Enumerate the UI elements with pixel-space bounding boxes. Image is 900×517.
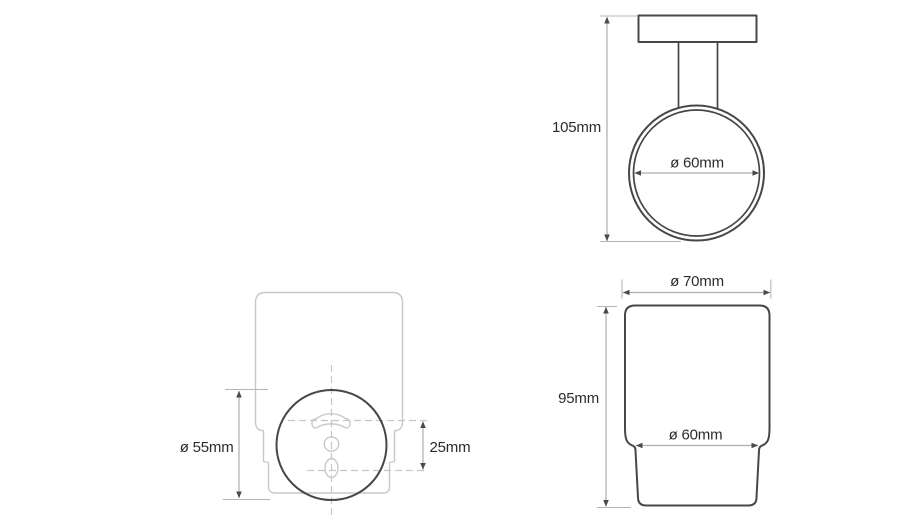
hole-spacing-label: 25mm [430, 439, 471, 456]
tumbler-ghost-outline [256, 293, 403, 494]
plate-diameter-label: ø 55mm [180, 439, 234, 456]
bottom-diameter-label: ø 60mm [669, 427, 723, 444]
tumbler-outline [625, 306, 770, 506]
technical-drawing: 105mm ø 60mm ø 70mm 95mm ø 60mm ø 55m [0, 0, 900, 517]
tumbler-height-label: 95mm [558, 390, 599, 407]
wall-plate [639, 16, 757, 43]
holder-back-view: ø 55mm 25mm [180, 293, 471, 517]
mounting-stem [679, 42, 718, 109]
height-dimension-label: 105mm [552, 119, 601, 136]
holder-front-view: 105mm ø 60mm [552, 16, 764, 242]
ring-diameter-label: ø 60mm [670, 155, 724, 172]
technical-drawing-canvas: 105mm ø 60mm ø 70mm 95mm ø 60mm ø 55m [0, 0, 900, 517]
top-diameter-label: ø 70mm [670, 273, 724, 290]
tumbler-front-view: ø 70mm 95mm ø 60mm [558, 273, 771, 508]
